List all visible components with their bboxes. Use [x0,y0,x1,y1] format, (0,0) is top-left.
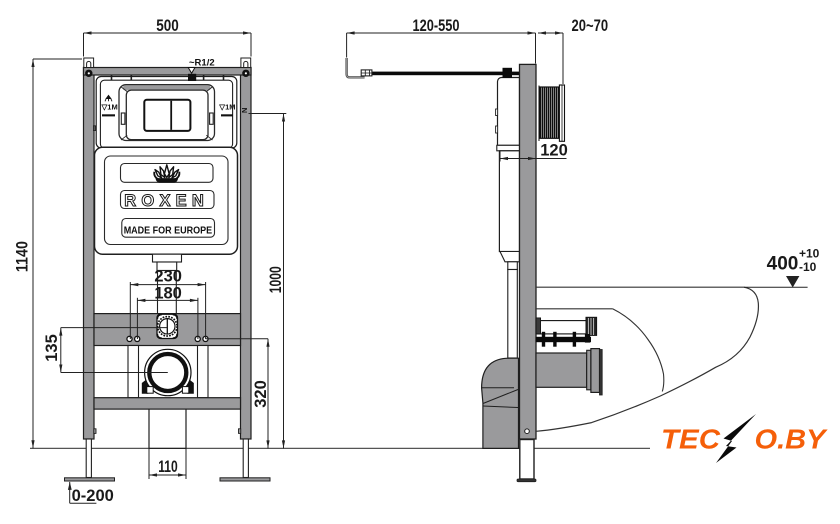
svg-text:135: 135 [43,334,61,362]
svg-text:0-200: 0-200 [72,487,114,505]
svg-text:▽1M: ▽1M [218,102,235,111]
svg-text:110: 110 [158,458,178,476]
svg-text:20~70: 20~70 [572,17,609,35]
svg-text:N: N [240,108,249,113]
svg-text:MADE FOR EUROPE: MADE FOR EUROPE [124,225,213,237]
svg-text:▽1M: ▽1M [101,102,118,111]
svg-text:320: 320 [252,380,270,408]
svg-text:~R1/2: ~R1/2 [189,57,215,68]
svg-text:TEC: TEC [661,424,721,455]
svg-text:-10: -10 [799,260,817,274]
svg-text:+10: +10 [799,247,820,261]
svg-text:120: 120 [540,142,568,160]
svg-text:120-550: 120-550 [413,17,460,35]
svg-text:500: 500 [156,17,179,35]
svg-text:400: 400 [767,254,799,275]
svg-text:1000: 1000 [267,266,285,293]
svg-text:230: 230 [154,267,182,285]
svg-text:O.BY: O.BY [755,424,829,455]
svg-text:180: 180 [154,285,182,303]
svg-text:1140: 1140 [13,241,31,272]
svg-text:ROXEN: ROXEN [124,192,209,210]
